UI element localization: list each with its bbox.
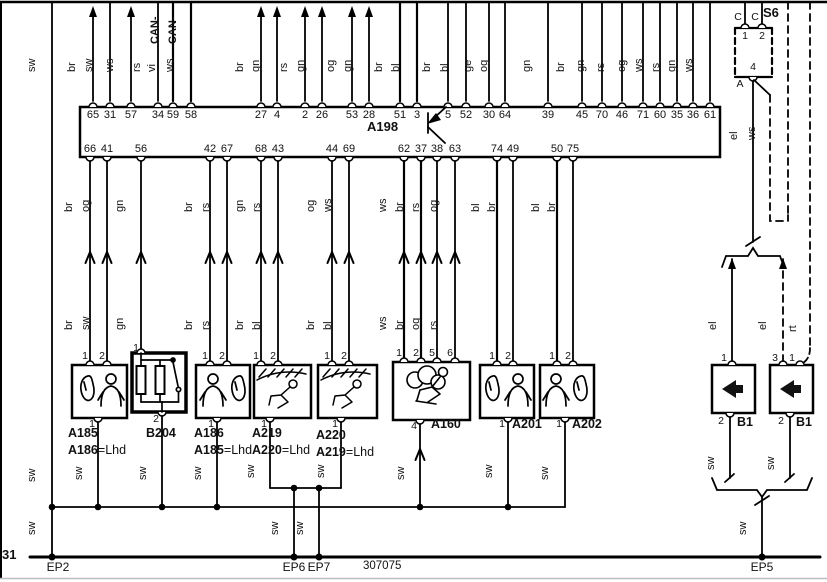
component-pin: 3	[767, 353, 778, 364]
s6-terminal-letter: A	[734, 79, 746, 90]
wire-color-label: br	[306, 320, 317, 330]
component-pin: 2	[773, 416, 784, 427]
lhd-suffix: =Lhd	[224, 443, 252, 457]
wire-color-label: bl	[531, 203, 542, 212]
component-pin: 1	[391, 348, 402, 359]
wire-color-label: el	[758, 321, 769, 330]
ground-point-ep2: EP2	[36, 561, 80, 573]
component-pin: 6	[442, 348, 453, 359]
component-pin: 1	[77, 351, 88, 362]
a198-pin-number: 56	[133, 144, 149, 155]
drawing-number: 307075	[363, 560, 401, 572]
a198-bottom-wires	[86, 161, 574, 361]
component-alt-label: A220=Lhd	[252, 444, 310, 457]
wire-color-label: sw	[766, 457, 777, 470]
can-bus-label: CAN-	[150, 17, 161, 45]
s6-terminal-letter: C	[749, 12, 761, 23]
a198-pin-number: 58	[183, 110, 199, 121]
component-label-a220: A220	[316, 429, 346, 442]
component-pin: 4	[406, 421, 417, 432]
s6-pin: 2	[756, 31, 768, 42]
a198-pin-number: 43	[270, 144, 286, 155]
a198-pin-number: 46	[614, 110, 630, 121]
wire-color-label: rs	[429, 321, 440, 330]
component-label-a185: A185	[68, 427, 98, 440]
component-pin: 1	[248, 351, 259, 362]
a198-pin-number: 74	[489, 144, 505, 155]
wire-color-label: sw	[193, 467, 204, 480]
a198-pin-number: 4	[269, 110, 285, 121]
wire-color-label: gn	[343, 60, 354, 72]
wire-color-label: rs	[411, 203, 422, 212]
wire-color-label: gn	[522, 60, 533, 72]
component-label-a160: A160	[431, 418, 461, 431]
component-pin: 1	[544, 351, 555, 362]
component-label-b1: B1	[737, 416, 753, 429]
a198-pin-number: 27	[253, 110, 269, 121]
wire-color-label: sw	[27, 469, 38, 482]
a198-pin-number: 66	[82, 144, 98, 155]
component-pin: 2	[560, 351, 571, 362]
component-alt-label: A186=Lhd	[68, 444, 126, 457]
wire-color-label: br	[184, 202, 195, 212]
wire-color-label: sw	[484, 465, 495, 478]
wire-color-label: br	[235, 62, 246, 72]
a198-pin-number: 39	[540, 110, 556, 121]
a198-pin-number: 42	[202, 144, 218, 155]
page-frame	[0, 2, 827, 579]
wire-color-label: rs	[201, 203, 212, 212]
a198-pin-number: 2	[297, 110, 313, 121]
a198-pin-number: 38	[429, 144, 445, 155]
wire-color-label: bl	[440, 63, 451, 72]
a198-pin-number: 59	[165, 110, 181, 121]
wire-color-label: vi	[147, 64, 158, 72]
a198-pin-number: 52	[458, 110, 474, 121]
component-pin: 2	[94, 351, 105, 362]
wire-color-label: sw	[270, 522, 281, 535]
wire-color-label: ws	[378, 199, 389, 212]
wire-color-label: ws	[747, 127, 758, 140]
a198-pin-number: 45	[574, 110, 590, 121]
a198-pin-number: 5	[440, 110, 456, 121]
component-alt-label: A185=Lhd	[194, 444, 252, 457]
wire-color-label: gn	[115, 200, 126, 212]
wire-color-label: rt	[788, 325, 799, 332]
lhd-suffix: =Lhd	[98, 443, 126, 457]
component-pin: 1	[494, 419, 505, 430]
wire-color-label: sw	[738, 522, 749, 535]
wire-color-label: br	[395, 320, 406, 330]
component-pin: 2	[265, 351, 276, 362]
can-bus-label: CAN-	[168, 17, 179, 45]
component-pin: 2	[408, 348, 419, 359]
component-label-a186: A186	[194, 427, 224, 440]
wire-color-label: bl	[471, 203, 482, 212]
s6-terminal-letter: C	[732, 12, 744, 23]
wire-color-label: br	[184, 320, 195, 330]
component-alt-label: A219=Lhd	[316, 446, 374, 459]
wire-color-label: sw	[27, 59, 38, 72]
wire-color-label: sw	[316, 465, 327, 478]
a198-pin-number: 34	[150, 110, 166, 121]
wire-color-label: sw	[81, 317, 92, 330]
a198-pin-number: 57	[123, 110, 139, 121]
wire-color-label: sw	[540, 467, 551, 480]
wire-color-label: ws	[105, 59, 116, 72]
wire-color-label: og	[81, 200, 92, 212]
a198-label: A198	[367, 120, 398, 133]
wire-color-label: br	[547, 202, 558, 212]
wire-color-label: ws	[684, 59, 695, 72]
wire-color-label: og	[479, 60, 490, 72]
wire-color-label: og	[306, 200, 317, 212]
a198-pin-number: 71	[635, 110, 651, 121]
a198-pin-number: 30	[481, 110, 497, 121]
lhd-suffix: =Lhd	[282, 443, 310, 457]
wire-color-label: rs	[132, 63, 143, 72]
component-pin: 5	[424, 348, 435, 359]
alt-id: A186	[68, 443, 98, 457]
wire-color-label: ws	[634, 59, 645, 72]
lhd-suffix: =Lhd	[346, 445, 374, 459]
alt-id: A185	[194, 443, 224, 457]
wire-color-label: sw	[27, 522, 38, 535]
component-pin: 2	[148, 414, 159, 425]
component-pin: 1	[484, 351, 495, 362]
component-label-a202: A202	[572, 418, 602, 431]
wire-color-label: rs	[279, 63, 290, 72]
a198-pin-number: 3	[409, 110, 425, 121]
wire-color-label: sw	[138, 467, 149, 480]
wire-color-label: br	[64, 202, 75, 212]
wiring-svg	[0, 0, 827, 582]
wire-color-label: gn	[576, 60, 587, 72]
component-label-a201: A201	[512, 418, 542, 431]
wire-color-label: sw	[706, 457, 717, 470]
horn-circuit-wires	[712, 2, 812, 557]
wire-color-label: gn	[115, 318, 126, 330]
a198-pin-number: 64	[497, 110, 513, 121]
wire-color-label: sw	[396, 467, 407, 480]
a198-pin-number: 49	[505, 144, 521, 155]
wire-color-label: og	[617, 60, 628, 72]
a198-pin-number: 44	[324, 144, 340, 155]
component-label-a219: A219	[252, 427, 282, 440]
wire-color-label: ws	[323, 199, 334, 212]
wire-color-label: ws	[378, 317, 389, 330]
wire-color-label: br	[556, 62, 567, 72]
wire-color-label: sw	[246, 465, 257, 478]
wire-color-label: bl	[252, 321, 263, 330]
terminal-31-label: 31	[2, 548, 16, 561]
component-pin: 1	[197, 351, 208, 362]
junction-dots	[49, 485, 766, 561]
a198-pin-number: 63	[447, 144, 463, 155]
wire-color-label: bl	[323, 321, 334, 330]
a198-pin-number: 41	[99, 144, 115, 155]
component-pin: 1	[319, 351, 330, 362]
a198-pin-number: 35	[669, 110, 685, 121]
a198-pin-number: 69	[341, 144, 357, 155]
wire-color-label: ge	[463, 60, 474, 72]
wiring-diagram-canvas: br sw ws rs vi ws CAN- CAN- br gn rs gn …	[0, 0, 827, 582]
a198-pin-number: 36	[685, 110, 701, 121]
a198-pin-number: 75	[565, 144, 581, 155]
a198-pin-number: 37	[413, 144, 429, 155]
a198-top-wires	[89, 2, 710, 101]
wire-color-label: br	[487, 202, 498, 212]
a198-pin-number: 67	[219, 144, 235, 155]
a198-pin-number: 26	[314, 110, 330, 121]
wire-color-label: br	[422, 62, 433, 72]
wire-color-label: rs	[201, 321, 212, 330]
component-pin: 1	[551, 419, 562, 430]
a198-pin-number: 62	[396, 144, 412, 155]
s6-pin: 4	[747, 62, 759, 73]
wire-color-label: og	[429, 200, 440, 212]
a198-pin-number: 68	[253, 144, 269, 155]
component-pin: 1	[716, 353, 727, 364]
component-pin: 2	[214, 351, 225, 362]
wire-color-label: br	[374, 62, 385, 72]
a198-pin-number: 61	[702, 110, 718, 121]
component-label-b1: B1	[796, 416, 812, 429]
wire-color-label: rs	[651, 63, 662, 72]
a198-pin-number: 70	[594, 110, 610, 121]
ground-point-ep7: EP7	[297, 561, 341, 573]
wire-color-label: el	[708, 321, 719, 330]
wire-color-label: br	[395, 202, 406, 212]
component-pin: 2	[500, 351, 511, 362]
a198-pin-number: 65	[85, 110, 101, 121]
wire-color-label: el	[729, 131, 740, 140]
wire-color-label: rs	[252, 203, 263, 212]
wire-color-label: og	[411, 318, 422, 330]
component-pin: 1	[128, 343, 139, 354]
component-a186-box	[196, 365, 250, 418]
component-label-s6: S6	[763, 6, 779, 19]
wire-color-label: gn	[296, 60, 307, 72]
wire-color-label: br	[64, 320, 75, 330]
component-pin: 2	[336, 351, 347, 362]
wire-color-label: ws	[165, 59, 176, 72]
ground-point-ep5: EP5	[740, 561, 784, 573]
wire-color-label: gn	[667, 60, 678, 72]
wire-color-label: gn	[251, 60, 262, 72]
alt-id: A219	[316, 445, 346, 459]
wire-color-label: br	[67, 62, 78, 72]
wire-color-label: rs	[596, 63, 607, 72]
a198-pin-number: 50	[549, 144, 565, 155]
wire-color-label: sw	[84, 59, 95, 72]
component-label-b204: B204	[146, 427, 176, 440]
wire-color-label: og	[326, 60, 337, 72]
wire-color-label: sw	[295, 522, 306, 535]
a198-pin-number: 53	[344, 110, 360, 121]
wire-color-label: br	[235, 320, 246, 330]
s6-pin: 1	[739, 31, 751, 42]
a198-pin-number: 31	[102, 110, 118, 121]
alt-id: A220	[252, 443, 282, 457]
wire-color-label: sw	[74, 467, 85, 480]
component-pin: 2	[713, 416, 724, 427]
wire-color-label: bl	[391, 63, 402, 72]
component-pin: 1	[784, 353, 795, 364]
a198-pin-number: 60	[652, 110, 668, 121]
wire-color-label: gn	[235, 200, 246, 212]
